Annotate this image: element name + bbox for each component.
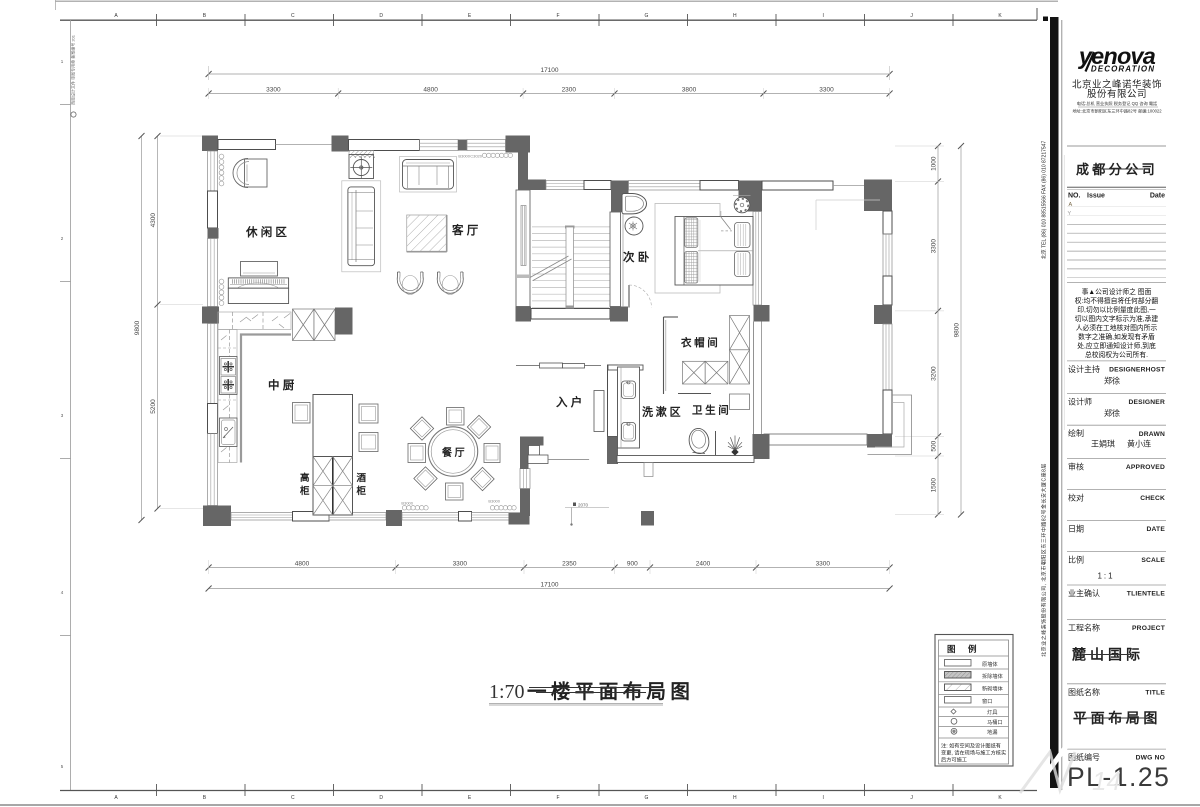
svg-text:切以图内文字标示为准,承建: 切以图内文字标示为准,承建	[1075, 314, 1159, 323]
svg-text:印,切勿以比例量度此图,一: 印,切勿以比例量度此图,一	[1077, 305, 1156, 314]
svg-text:5200: 5200	[150, 399, 157, 414]
svg-text:总校阅权为公司所有.: 总校阅权为公司所有.	[1085, 350, 1148, 359]
svg-text:郑徐: 郑徐	[1104, 376, 1120, 386]
svg-text:I: I	[823, 13, 824, 19]
svg-text:I: I	[823, 795, 824, 801]
svg-text:1:1: 1:1	[1097, 572, 1114, 581]
svg-text:3300: 3300	[819, 87, 834, 94]
svg-text:DWG NO: DWG NO	[1136, 755, 1165, 762]
svg-text:2400: 2400	[696, 561, 711, 568]
svg-text:D: D	[379, 13, 383, 19]
svg-text:中厨: 中厨	[268, 378, 297, 392]
svg-text:G: G	[644, 795, 648, 801]
svg-text:柜: 柜	[299, 485, 310, 497]
svg-text:DRAWN: DRAWN	[1139, 431, 1165, 438]
svg-text:C: C	[291, 795, 295, 801]
svg-text:王娟琪: 王娟琪	[1091, 439, 1115, 449]
svg-text:3300: 3300	[816, 561, 831, 568]
svg-text:D: D	[379, 795, 383, 801]
svg-text:F: F	[556, 795, 559, 801]
svg-text:洗漱区: 洗漱区	[642, 405, 683, 419]
svg-text:北京 TEL (86) 010 88515566 FAX (: 北京 TEL (86) 010 88515566 FAX (86) 010 87…	[1040, 141, 1047, 260]
svg-text:3800: 3800	[682, 87, 697, 94]
svg-text:图纸名称: 图纸名称	[1068, 687, 1100, 697]
svg-text:1500: 1500	[931, 478, 938, 493]
svg-text:G: G	[644, 13, 648, 19]
svg-text:拆除墙体: 拆除墙体	[982, 672, 1004, 680]
svg-text:B3000: B3000	[458, 154, 470, 159]
svg-text:新砌墙体: 新砌墙体	[982, 685, 1004, 693]
svg-text:注: 如有空间及设计图纸有: 注: 如有空间及设计图纸有	[941, 742, 1001, 750]
svg-text:图: 图	[947, 644, 956, 654]
svg-text:日期: 日期	[1068, 525, 1084, 534]
svg-text:数字之准确,如发现有矛盾: 数字之准确,如发现有矛盾	[1078, 332, 1155, 341]
svg-text:比例: 比例	[1068, 555, 1084, 565]
svg-text:客厅: 客厅	[451, 223, 481, 237]
svg-text:DESIGNERHOST: DESIGNERHOST	[1109, 367, 1166, 374]
svg-text:2300: 2300	[562, 87, 577, 94]
svg-text:F: F	[556, 13, 559, 19]
svg-text:SCALE: SCALE	[1141, 557, 1165, 564]
svg-text:窗口: 窗口	[982, 697, 992, 705]
svg-text:次卧: 次卧	[623, 250, 652, 264]
svg-text:入户: 入户	[556, 395, 585, 409]
svg-text:B3000: B3000	[488, 499, 500, 504]
svg-text:A: A	[1069, 202, 1073, 208]
svg-text:地漏: 地漏	[987, 728, 997, 736]
svg-text:C: C	[291, 13, 295, 19]
svg-text:地址:北京市朝阳区东三环中路82号 邮编:100022: 地址:北京市朝阳区东三环中路82号 邮编:100022	[1072, 108, 1162, 115]
svg-text:PROJECT: PROJECT	[1132, 625, 1166, 632]
svg-text:衣帽间: 衣帽间	[681, 336, 720, 349]
svg-text:柜: 柜	[356, 485, 367, 497]
svg-text:股份有限公司: 股份有限公司	[1087, 88, 1147, 100]
svg-text:2070: 2070	[578, 503, 589, 508]
svg-text:500: 500	[931, 440, 938, 451]
svg-text:2350: 2350	[562, 561, 577, 568]
svg-text:设计主持: 设计主持	[1068, 364, 1100, 374]
svg-text:TITLE: TITLE	[1145, 689, 1165, 696]
svg-text:H: H	[733, 795, 737, 801]
svg-text:DECORATION: DECORATION	[1091, 65, 1155, 74]
svg-text:审核: 审核	[1068, 461, 1084, 471]
svg-text:处,应立即通知设计师,到底: 处,应立即通知设计师,到底	[1077, 341, 1156, 350]
svg-text:9800: 9800	[954, 323, 961, 338]
svg-text:4300: 4300	[150, 213, 157, 228]
svg-text:休闲区: 休闲区	[245, 225, 290, 239]
svg-text:TLIENTELE: TLIENTELE	[1127, 591, 1166, 598]
svg-text:CHECK: CHECK	[1140, 495, 1165, 502]
svg-text:9800: 9800	[134, 320, 141, 335]
svg-text:C3020: C3020	[470, 154, 483, 159]
svg-text:高: 高	[300, 472, 310, 484]
svg-text:NO.: NO.	[1068, 193, 1081, 200]
svg-text:14: 14	[1092, 766, 1121, 796]
svg-text:B3000: B3000	[401, 501, 413, 506]
svg-text:H: H	[733, 13, 737, 19]
svg-text:17100: 17100	[540, 67, 558, 74]
svg-text:DESIGNER: DESIGNER	[1128, 399, 1165, 406]
svg-text:人必须在工地核对图内所示: 人必须在工地核对图内所示	[1076, 323, 1158, 332]
svg-text:Issue: Issue	[1087, 193, 1105, 200]
svg-text:成都分公司: 成都分公司	[1076, 162, 1158, 177]
svg-text:例: 例	[968, 644, 977, 654]
svg-text:3300: 3300	[453, 561, 468, 568]
svg-text:后方可施工: 后方可施工	[941, 756, 967, 764]
svg-text:马桶口: 马桶口	[987, 718, 1003, 726]
svg-text:变更, 请在现场与施工方核实: 变更, 请在现场与施工方核实	[941, 749, 1006, 757]
svg-text:餐厅: 餐厅	[441, 446, 467, 459]
svg-text:3300: 3300	[931, 239, 938, 254]
svg-text:业主确认: 业主确认	[1068, 588, 1100, 598]
svg-text:一楼平面布局图: 一楼平面布局图	[527, 680, 694, 703]
svg-text:电话:总机 营业执照 税务登记 QQ 咨询 電話: 电话:总机 营业执照 税务登记 QQ 咨询 電話	[1077, 100, 1158, 107]
svg-text:北京业之峰装饰股份有限公司, 北京市朝阳区东三环中路82号金: 北京业之峰装饰股份有限公司, 北京市朝阳区东三环中路82号金长安大厦C座8层	[1040, 463, 1047, 657]
svg-text:1:70: 1:70	[489, 681, 525, 703]
svg-text:900: 900	[627, 561, 638, 568]
svg-text:17100: 17100	[540, 582, 558, 589]
svg-text:校对: 校对	[1068, 493, 1084, 503]
svg-text:设计师: 设计师	[1068, 396, 1092, 406]
svg-text:酒: 酒	[357, 472, 367, 484]
svg-text:Date: Date	[1150, 193, 1165, 200]
svg-text:权:均不得擅自将任何部分翻: 权:均不得擅自将任何部分翻	[1075, 296, 1159, 305]
svg-text:3200: 3200	[931, 366, 938, 381]
svg-text:灯具: 灯具	[987, 708, 997, 716]
svg-text:Y: Y	[1068, 211, 1072, 217]
svg-text:4800: 4800	[423, 87, 438, 94]
svg-text:APPROVED: APPROVED	[1126, 464, 1165, 471]
svg-text:原墙体: 原墙体	[982, 660, 998, 668]
svg-text:1000: 1000	[931, 156, 938, 171]
svg-text:工程名称: 工程名称	[1068, 622, 1100, 632]
svg-text:DATE: DATE	[1146, 526, 1165, 533]
svg-text:卫生间: 卫生间	[692, 404, 731, 417]
svg-text:绘制: 绘制	[1068, 428, 1084, 438]
svg-text:郑徐: 郑徐	[1104, 408, 1120, 418]
svg-text:4800: 4800	[295, 561, 310, 568]
svg-text:事▲公司设计师之 图面: 事▲公司设计师之 图面	[1082, 287, 1152, 296]
svg-text:3300: 3300	[266, 87, 281, 94]
svg-text:黄小连: 黄小连	[1127, 439, 1151, 449]
svg-text:西南设计文件 审图专用章 备案编号 201: 西南设计文件 审图专用章 备案编号 201	[70, 34, 76, 105]
